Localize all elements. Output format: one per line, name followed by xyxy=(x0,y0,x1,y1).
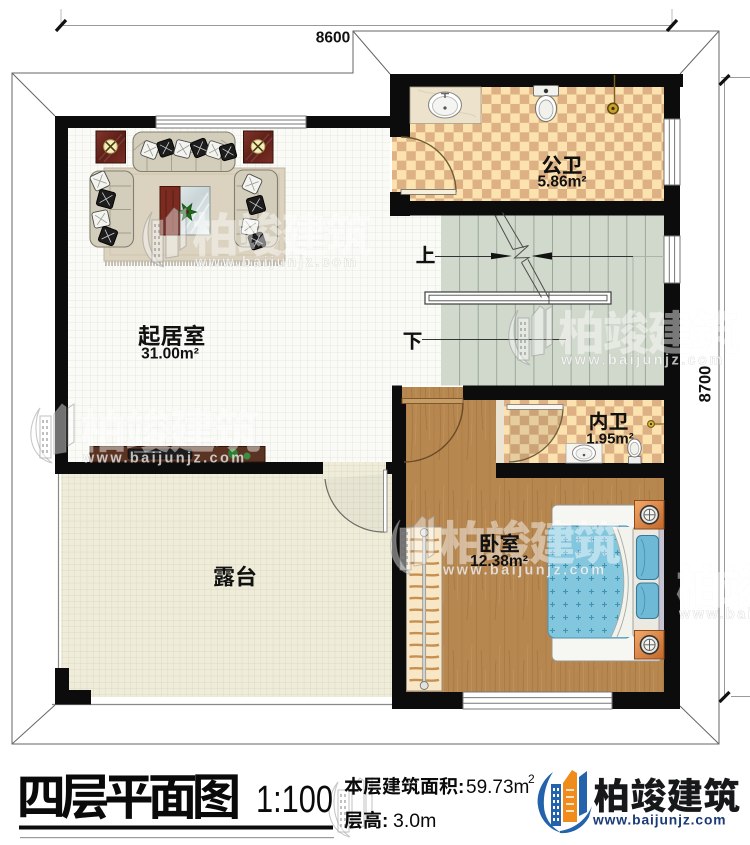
svg-text:1:100: 1:100 xyxy=(256,779,333,821)
svg-text:8600: 8600 xyxy=(316,30,350,47)
svg-text::: : xyxy=(458,777,464,798)
svg-text:2: 2 xyxy=(528,772,535,786)
svg-text:3.0m: 3.0m xyxy=(393,810,436,832)
svg-text:8700: 8700 xyxy=(697,366,715,403)
svg-text:www.baijunjz.com: www.baijunjz.com xyxy=(82,451,247,467)
svg-text:59.73m: 59.73m xyxy=(466,777,529,798)
svg-text:1.95m²: 1.95m² xyxy=(586,431,634,448)
svg-text:www.baijunjz.com: www.baijunjz.com xyxy=(194,255,359,271)
svg-text:12.38m²: 12.38m² xyxy=(470,553,528,570)
svg-text::: : xyxy=(382,811,388,832)
svg-text:5.86m²: 5.86m² xyxy=(537,174,586,191)
svg-text:www.baijunjz.com: www.baijunjz.com xyxy=(560,353,725,369)
svg-text:31.00m²: 31.00m² xyxy=(141,346,199,363)
svg-text:www.baijunjz.com: www.baijunjz.com xyxy=(678,607,750,623)
svg-text:www.baijunjz.com: www.baijunjz.com xyxy=(592,813,726,828)
